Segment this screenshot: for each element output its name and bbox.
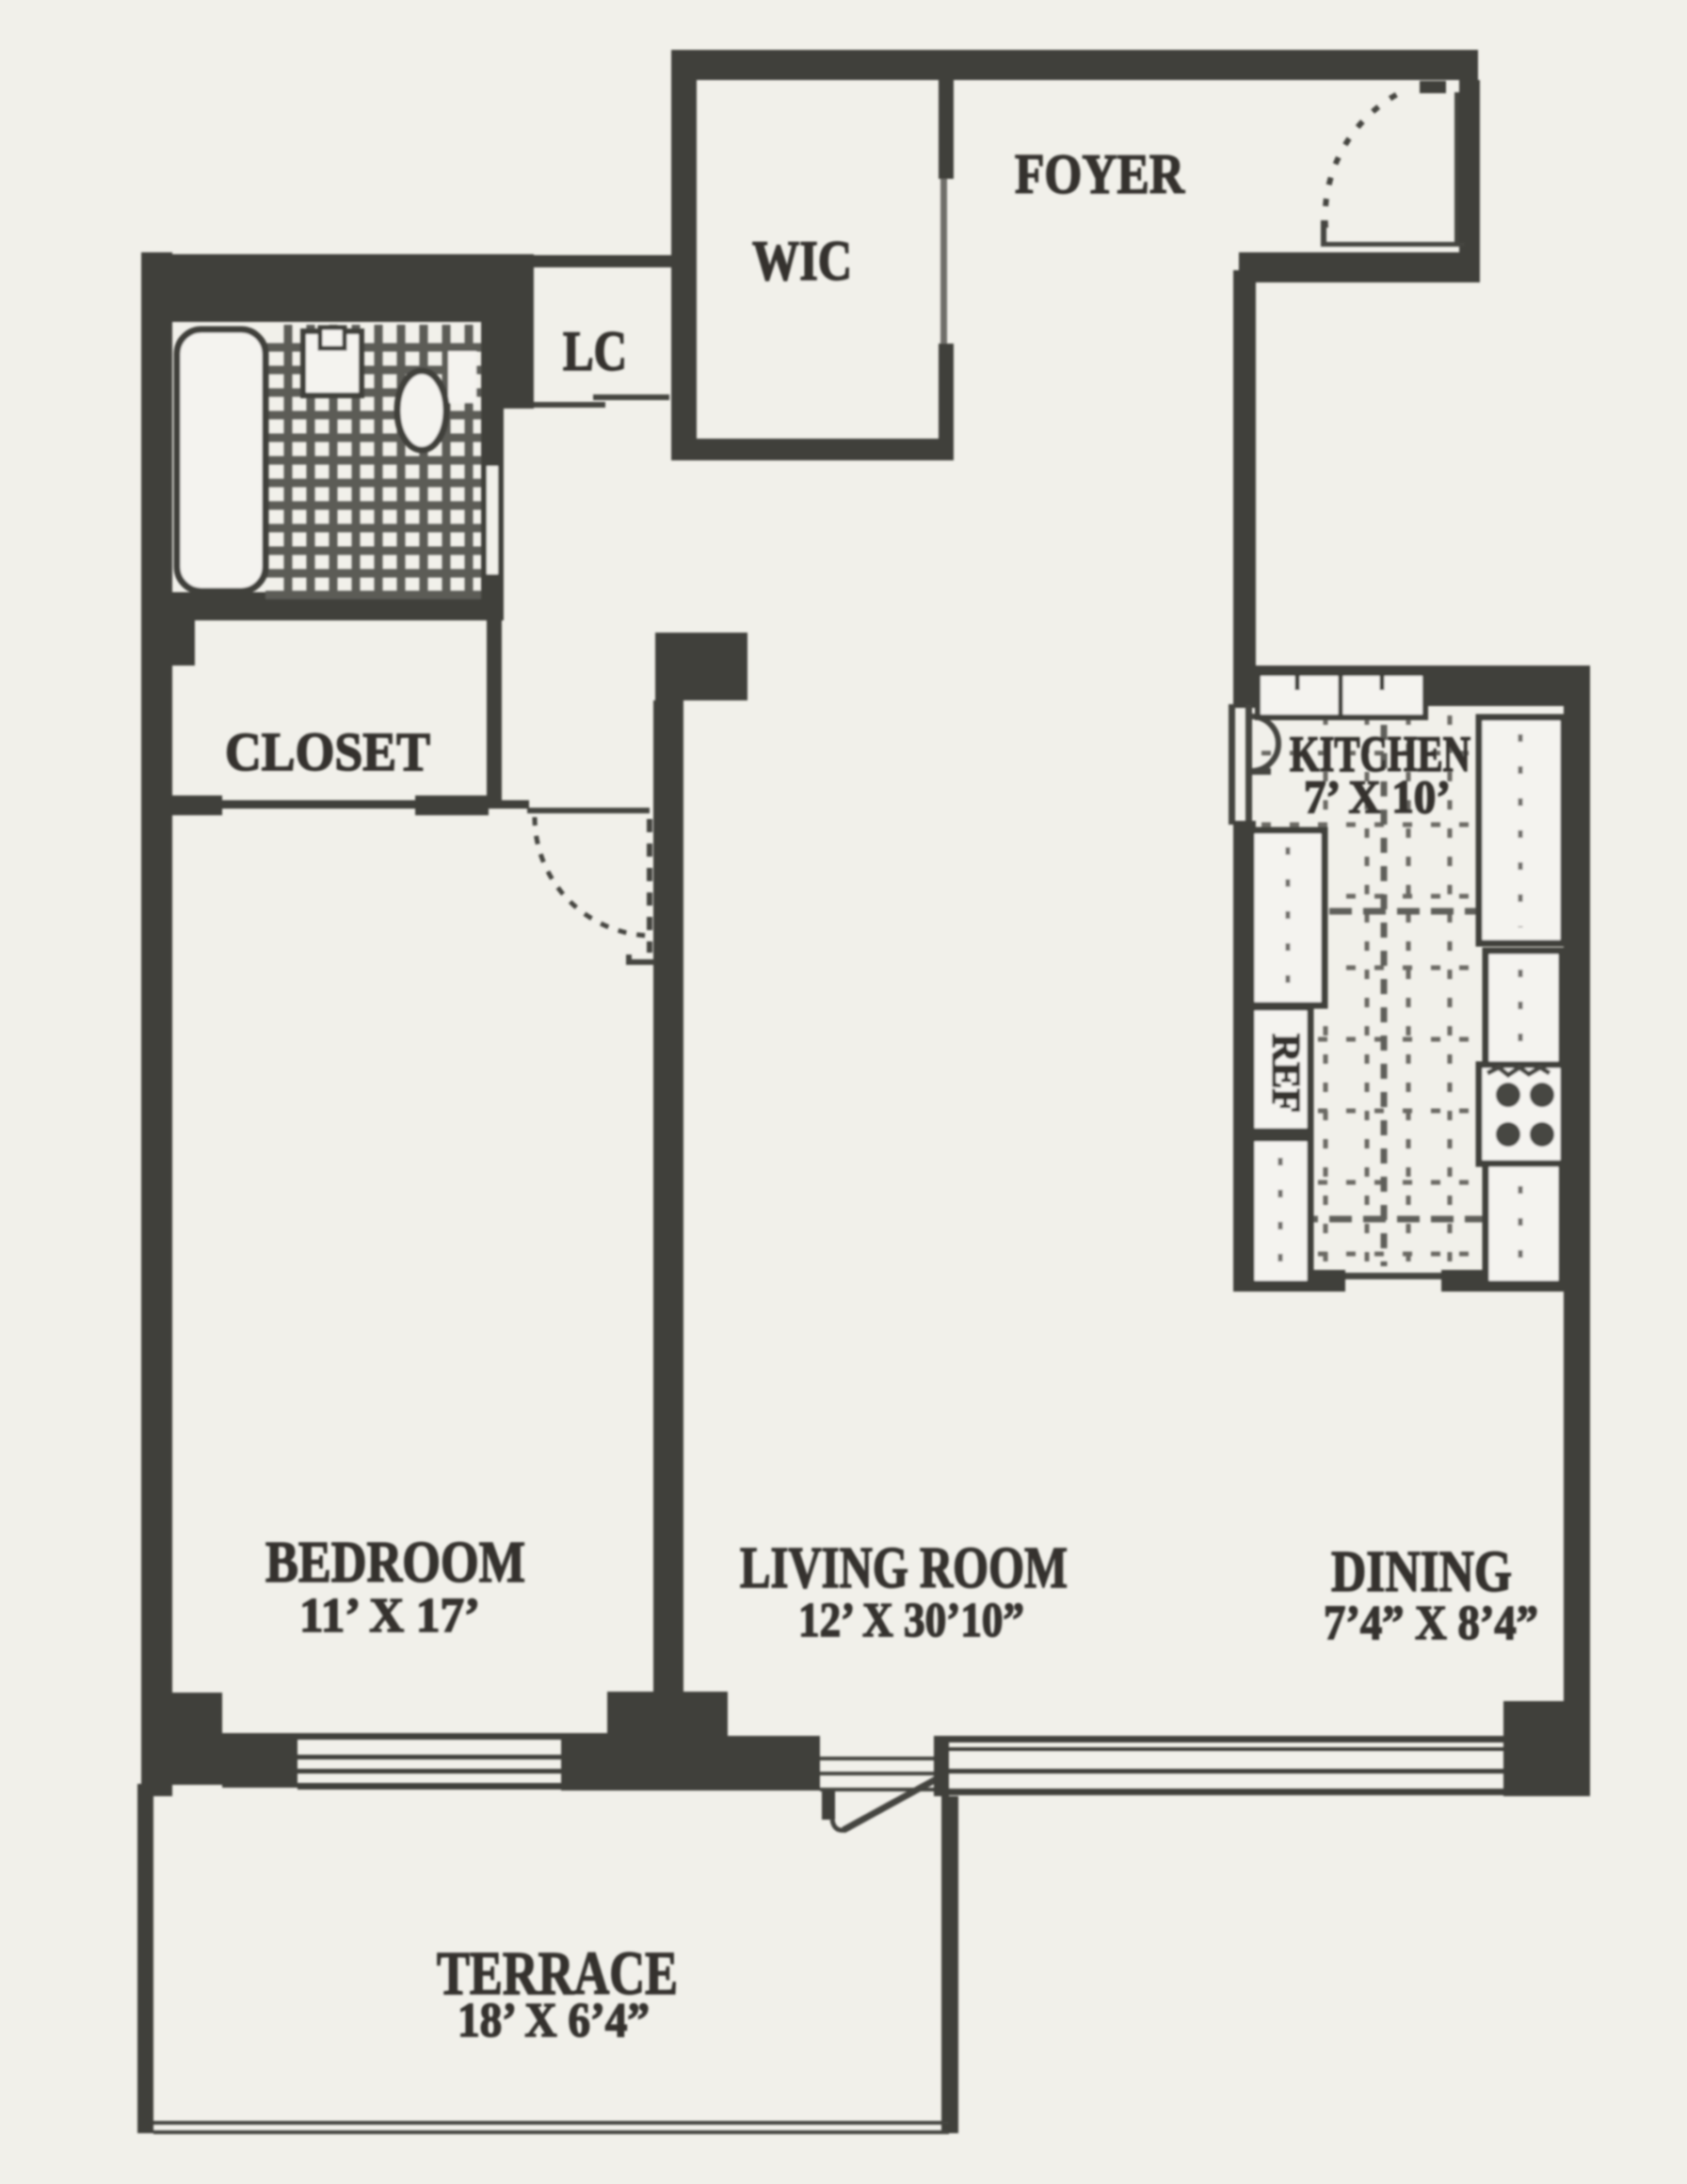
svg-text:7’4” X 8’4”: 7’4” X 8’4” xyxy=(1324,1597,1538,1650)
svg-text:12’ X 30’10”: 12’ X 30’10” xyxy=(798,1594,1024,1647)
svg-text:11’ X 17’: 11’ X 17’ xyxy=(299,1589,480,1643)
svg-text:REF: REF xyxy=(1263,1034,1307,1113)
svg-text:FOYER: FOYER xyxy=(1015,143,1185,205)
svg-text:WIC: WIC xyxy=(752,230,852,292)
svg-text:LIVING ROOM: LIVING ROOM xyxy=(740,1536,1068,1600)
svg-text:7’ X 10’: 7’ X 10’ xyxy=(1304,770,1451,823)
svg-text:CLOSET: CLOSET xyxy=(225,721,430,782)
svg-text:18’ X 6’4”: 18’ X 6’4” xyxy=(458,1994,650,2047)
svg-text:LC: LC xyxy=(563,320,627,382)
svg-text:DINING: DINING xyxy=(1331,1540,1512,1604)
svg-text:BEDROOM: BEDROOM xyxy=(265,1531,525,1595)
